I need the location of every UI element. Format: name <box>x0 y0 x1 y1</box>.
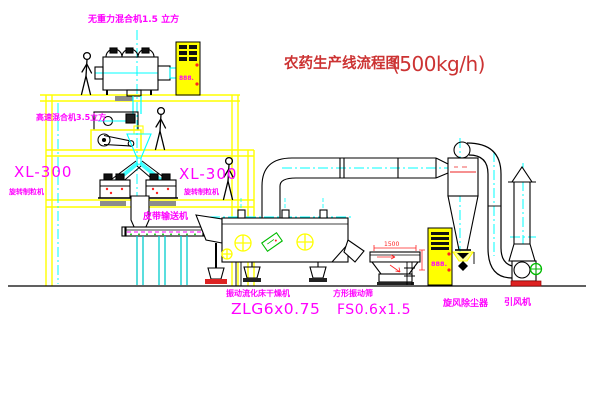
induced-draft-fan <box>511 261 542 286</box>
exhaust-duct <box>262 158 448 218</box>
label-dryer-name: 振动流化床干燥机 <box>226 288 290 298</box>
cabinet-display: 888. <box>179 75 194 82</box>
cad-drawing-page: 888. <box>0 0 600 403</box>
control-cabinet-top: 888. <box>176 42 200 95</box>
vibrating-screen <box>370 245 425 285</box>
label-screen-name: 方形振动筛 <box>333 288 373 298</box>
label-xl300-right: XL-300 <box>179 165 237 183</box>
page-title-zh: 农药生产线流程图 <box>283 54 400 72</box>
label-granulator-left: 旋转制粒机 <box>8 187 44 196</box>
belt-conveyor <box>122 227 207 285</box>
label-xl300-left: XL-300 <box>14 163 72 181</box>
label-cyclone: 旋风除尘器 <box>442 297 489 309</box>
label-gravity-mixer: 无重力混合机1.5 立方 <box>87 13 179 25</box>
person-figure <box>82 53 92 95</box>
diagram-canvas: 888. <box>0 0 600 403</box>
exhaust-stack <box>508 167 536 261</box>
label-belt-conveyor: 皮带输送机 <box>142 210 188 222</box>
dimension-1500: 1500 <box>384 241 399 248</box>
label-high-speed-mixer: 高速混合机3.5立方 <box>36 112 106 122</box>
label-screen-model: FS0.6x1.5 <box>337 302 411 318</box>
label-fan: 引风机 <box>504 296 531 308</box>
label-dryer-model: ZLG6x0.75 <box>231 300 320 318</box>
person-figure <box>156 108 166 150</box>
control-cabinet-right: 888. <box>428 228 452 285</box>
page-title-capacity: (500kg/h) <box>392 52 485 76</box>
label-granulator-right: 旋转制粒机 <box>183 187 219 196</box>
cabinet-display: 888. <box>431 260 447 268</box>
